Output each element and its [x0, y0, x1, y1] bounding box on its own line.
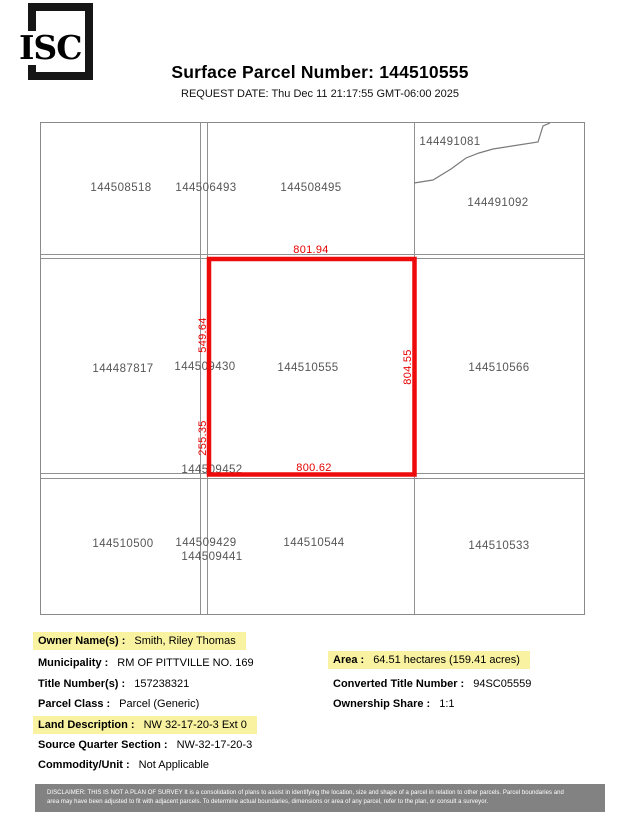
parcel-label: 144491081 [419, 136, 480, 148]
irregular-boundary-line [414, 123, 550, 183]
parcel-label: 144510533 [468, 540, 529, 552]
parcel-label: 144487817 [92, 363, 153, 375]
request-date: REQUEST DATE: Thu Dec 11 21:17:55 GMT-06… [0, 88, 640, 100]
disclaimer-bar: DISCLAIMER: THIS IS NOT A PLAN OF SURVEY… [35, 784, 605, 812]
detail-row-title-number: Title Number(s) :157238321 [38, 678, 189, 690]
parcel-label: 144506493 [175, 182, 236, 194]
parcel-label: 144510544 [283, 537, 344, 549]
parcel-label: 144509452 [181, 464, 242, 476]
highlight-owner-name: Owner Name(s) :Smith, Riley Thomas [33, 632, 246, 650]
isc-logo-text: ISC [19, 31, 85, 65]
dimension-label-left-upper: 549.64 [197, 317, 209, 352]
parcel-label: 144508518 [90, 182, 151, 194]
parcel-label-selected: 144510555 [277, 362, 338, 374]
parcel-label: 144491092 [467, 197, 528, 209]
detail-row-source-quarter-section: Source Quarter Section :NW-32-17-20-3 [38, 739, 252, 751]
disclaimer-line-1: DISCLAIMER: THIS IS NOT A PLAN OF SURVEY… [47, 789, 605, 798]
dimension-label-right: 804.55 [402, 349, 414, 384]
dimension-label-left-lower: 255.35 [197, 420, 209, 455]
page-title: Surface Parcel Number: 144510555 [0, 62, 640, 83]
parcel-label: 144509430 [174, 361, 235, 373]
parcel-label: 144509441 [181, 551, 242, 563]
disclaimer-line-2: area may have been adjusted to fit with … [47, 798, 605, 807]
detail-row-ownership-share: Ownership Share :1:1 [333, 698, 455, 710]
highlight-land-description: Land Description :NW 32-17-20-3 Ext 0 [33, 716, 257, 734]
detail-row-parcel-class: Parcel Class :Parcel (Generic) [38, 698, 199, 710]
detail-row-commodity-unit: Commodity/Unit :Not Applicable [38, 759, 209, 771]
parcel-label: 144510566 [468, 362, 529, 374]
parcel-map: 144508518 144506493 144508495 144491081 … [40, 122, 585, 615]
dimension-label-top: 801.94 [293, 244, 328, 256]
dimension-label-bottom: 800.62 [296, 462, 331, 474]
detail-row-owner-name: Owner Name(s) :Smith, Riley Thomas [38, 632, 246, 650]
parcel-label: 144509429 [175, 537, 236, 549]
parcel-label: 144508495 [280, 182, 341, 194]
parcel-label: 144510500 [92, 538, 153, 550]
highlight-area: Area :64.51 hectares (159.41 acres) [328, 651, 530, 669]
detail-row-land-description: Land Description :NW 32-17-20-3 Ext 0 [38, 716, 257, 734]
detail-row-municipality: Municipality :RM OF PITTVILLE NO. 169 [38, 657, 254, 669]
detail-row-area: Area :64.51 hectares (159.41 acres) [333, 651, 530, 669]
detail-row-converted-title-number: Converted Title Number :94SC05559 [333, 678, 531, 690]
